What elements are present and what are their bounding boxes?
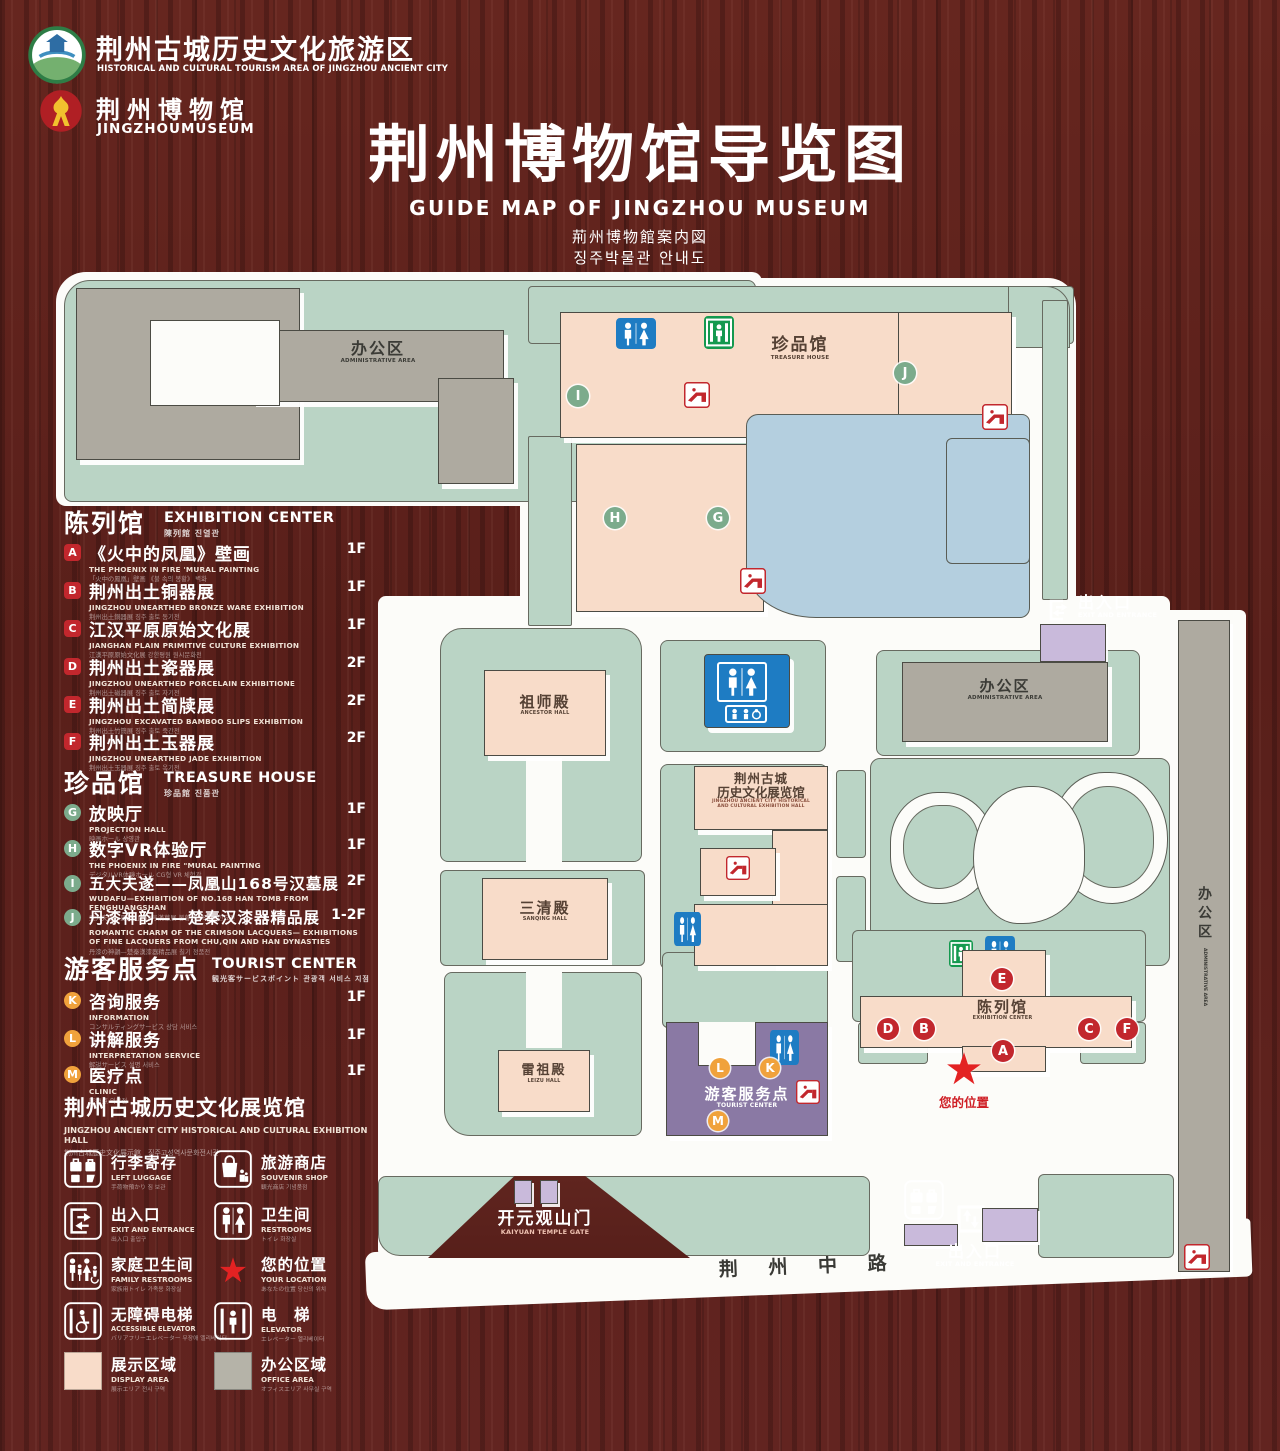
badge-B: B: [64, 582, 81, 599]
floor-tag: 1F: [347, 837, 366, 853]
lawn-south-east: [1038, 1174, 1174, 1258]
office-building-right: [902, 662, 1108, 742]
tourism-area-logo: [28, 26, 86, 84]
restroom-icon: [717, 662, 767, 702]
map-marker-H: H: [604, 507, 626, 529]
escalator-icon: [740, 568, 766, 594]
exit-top-label: 出入口 EXIT AND ENTRANCE: [1078, 594, 1178, 619]
your-location-star: ★: [936, 1048, 992, 1092]
section-title-sub: 陳列館 진열관: [164, 528, 334, 539]
legend-section-exhibition: 陈列馆 EXHIBITION CENTER 陳列館 진열관: [64, 504, 374, 540]
treasure-house-south-wing: [576, 444, 764, 612]
legend-section-tourist: 游客服务点 TOURIST CENTER 観光客サービスポイント 관광객 서비스…: [64, 950, 374, 986]
floor-tag: 1F: [347, 541, 366, 557]
escalator-icon: [796, 1080, 820, 1104]
map-marker-J: J: [894, 362, 916, 384]
escalator-icon: [684, 382, 710, 408]
office-top-label: 办公区 ADMINISTRATIVE AREA: [252, 340, 504, 364]
gate-post-right: [540, 1180, 558, 1204]
gate-post-left: [514, 1180, 532, 1204]
legend-symbol-souvenir: 旅游商店SOUVENIR SHOP観光商店 기념품점: [214, 1150, 362, 1191]
page-title-jp: 荊州博物館案内図: [290, 226, 990, 247]
legend-symbol-display-area: 展示区域DISPLAY AREA展示エリア 전시 구역: [64, 1352, 212, 1393]
family-restrooms-icon: [64, 1252, 102, 1290]
floor-tag: 1F: [347, 617, 366, 633]
restroom-pavilion: [704, 654, 790, 728]
section-title-en: EXHIBITION CENTER: [164, 510, 334, 526]
badge-F: F: [64, 733, 81, 750]
map-marker-F: F: [1116, 1018, 1138, 1040]
lawn-sliver-1: [836, 770, 866, 858]
badge-M: M: [64, 1066, 81, 1083]
office-area-swatch: [214, 1352, 252, 1390]
guide-map-poster: 荆州古城历史文化旅游区 HISTORICAL AND CULTURAL TOUR…: [0, 0, 1280, 1451]
legend-symbol-your-location: ★ 您的位置YOUR LOCATIONあなたの位置 당신의 위치: [214, 1252, 362, 1293]
exit-entrance-icon: [1048, 598, 1072, 622]
badge-J: J: [64, 909, 81, 926]
legend-item-K: K咨询服务1F INFORMATION コンサルティングサービス 상담 서비스: [64, 988, 366, 1031]
map-marker-A: A: [992, 1040, 1014, 1062]
map-marker-E: E: [991, 968, 1013, 990]
exhibition-center-label: 陈列馆 EXHIBITION CENTER: [935, 999, 1070, 1021]
exit-entrance-icon: [64, 1202, 102, 1240]
badge-L: L: [64, 1030, 81, 1047]
museum-name-en: JINGZHOUMUSEUM: [97, 121, 255, 137]
museum-name: 荆州博物馆: [96, 90, 251, 125]
left-luggage-icon: [904, 1180, 944, 1220]
elevator-icon: [214, 1302, 252, 1340]
map-marker-I: I: [567, 385, 589, 407]
page-title-en: GUIDE MAP OF JINGZHOU MUSEUM: [290, 196, 990, 220]
escalator-icon: [1184, 1244, 1210, 1270]
legend-item-D: D荆州出土瓷器展2F JINGZHOU UNEARTHED PORCELAIN …: [64, 654, 366, 697]
escalator-icon: [982, 404, 1008, 430]
exhibition-hall-label: 荆州古城 历史文化展览馆 JINGZHOU ANCIENT CITY HISTO…: [694, 772, 828, 810]
legend-hall-banner: 荆州古城历史文化展览馆 JINGZHOU ANCIENT CITY HISTOR…: [64, 1092, 394, 1158]
path-sanqing: [526, 968, 562, 1048]
tourist-center-notch: [698, 1022, 756, 1066]
section-title-en: TREASURE HOUSE: [164, 770, 317, 786]
badge-K: K: [64, 992, 81, 1009]
left-luggage-icon: [64, 1150, 102, 1188]
museum-logo: [38, 88, 84, 134]
page-title: 荆州博物馆导览图: [290, 104, 990, 194]
section-title-sub: 珍品館 진품관: [164, 788, 317, 799]
office-building-nw-3: [438, 378, 514, 484]
path-ancestor: [526, 758, 562, 862]
badge-G: G: [64, 804, 81, 821]
escalator-icon: [726, 856, 750, 880]
restroom-icon: [674, 912, 701, 946]
sanqing-hall-label: 三清殿 SANQING HALL: [482, 900, 608, 922]
garden-pond: [973, 786, 1085, 924]
badge-A: A: [64, 544, 81, 561]
section-title-sub: 観光客サービスポイント 관광객 서비스 지점: [212, 974, 370, 984]
badge-I: I: [64, 875, 81, 892]
floor-tag: 1F: [347, 1063, 366, 1079]
ancestor-hall-label: 祖师殿 ANCESTOR HALL: [484, 694, 606, 716]
legend-item-J: J丹漆神韵——楚秦汉漆器精品展1-2F ROMANTIC CHARM OF TH…: [64, 906, 366, 956]
legend-section-treasure: 珍品馆 TREASURE HOUSE 珍品館 진품관: [64, 764, 374, 800]
legend-symbol-exit: 出入口EXIT AND ENTRANCE出入口 출입구: [64, 1202, 212, 1243]
legend-symbol-office-area: 办公区域OFFICE AREAオフィスエリア 사무실 구역: [214, 1352, 362, 1393]
display-area-swatch: [64, 1352, 102, 1390]
office-right-label: 办公区 ADMINISTRATIVE AREA: [902, 678, 1108, 701]
restroom-icon: [616, 318, 656, 349]
entrance-gate-bottom-right: [982, 1208, 1038, 1242]
floor-tag: 1F: [347, 801, 366, 817]
souvenir-shop-icon: [214, 1150, 252, 1188]
floor-tag: 2F: [347, 730, 366, 746]
accessible-restroom-icon: [725, 705, 767, 723]
floor-tag: 2F: [347, 655, 366, 671]
legend-item-C: C江汉平原原始文化展1F JIANGHAN PLAIN PRIMITIVE CU…: [64, 616, 366, 659]
floor-tag: 1F: [347, 989, 366, 1005]
lawn-treasure-west: [528, 436, 572, 626]
exhibition-hall-south: [694, 904, 828, 966]
entrance-gate-top: [1040, 624, 1106, 662]
legend-symbol-accessible-elevator: 无障碍电梯ACCESSIBLE ELEVATORバリアフリーエレベーター 무장애…: [64, 1302, 212, 1342]
floor-tag: 1-2F: [331, 907, 366, 923]
elevator-icon: [704, 316, 734, 349]
tourism-area-name-en: HISTORICAL AND CULTURAL TOURISM AREA OF …: [97, 63, 448, 73]
office-strip-label: 办公区 ADMINISTRATIVE AREA: [1194, 886, 1214, 1006]
legend-symbol-family-restrooms: 家庭卫生间FAMILY RESTROOMS家族用トイレ 가족용 화장실: [64, 1252, 212, 1293]
map-marker-L: L: [710, 1058, 730, 1078]
legend-symbol-elevator: 电 梯ELEVATORエレベーター 엘리베이터: [214, 1302, 362, 1343]
restrooms-icon: [214, 1202, 252, 1240]
map-marker-C: C: [1078, 1018, 1100, 1040]
badge-D: D: [64, 658, 81, 675]
lawn-treasure-east: [1042, 300, 1068, 600]
legend-symbol-left-luggage: 行李寄存LEFT LUGGAGE手荷物預かり 짐 보관: [64, 1150, 212, 1191]
badge-H: H: [64, 840, 81, 857]
badge-E: E: [64, 696, 81, 713]
office-strip-building: 办公区 ADMINISTRATIVE AREA: [1178, 620, 1230, 1272]
floor-tag: 2F: [347, 693, 366, 709]
map-marker-B: B: [913, 1018, 935, 1040]
leizu-hall-label: 雷祖殿 LEIZU HALL: [498, 1064, 590, 1084]
map-marker-D: D: [877, 1018, 899, 1040]
tourism-area-name: 荆州古城历史文化旅游区: [96, 28, 415, 67]
section-title-en: TOURIST CENTER: [212, 956, 357, 972]
your-location-star: ★: [214, 1252, 252, 1290]
accessible-elevator-icon: [64, 1302, 102, 1340]
lake-east: [946, 438, 1030, 564]
legend-item-A: A《火中的凤凰》壁画1F THE PHOENIX IN FIRE 'MURAL …: [64, 540, 366, 583]
legend-item-B: B荆州出土铜器展1F JINGZHOU UNEARTHED BRONZE WAR…: [64, 578, 366, 621]
map-marker-K: K: [760, 1058, 780, 1078]
floor-tag: 2F: [347, 873, 366, 889]
your-location-label: 您的位置: [924, 1092, 1004, 1111]
page-title-kr: 징주박물관 안내도: [290, 247, 990, 268]
exit-bottom-label: 出入口 EXIT AND ENTRANCE: [920, 1243, 1030, 1268]
map-marker-M: M: [708, 1111, 728, 1131]
floor-tag: 1F: [347, 579, 366, 595]
legend-symbol-restrooms: 卫生间RESTROOMSトイレ 화장실: [214, 1202, 362, 1243]
badge-C: C: [64, 620, 81, 637]
map-marker-G: G: [707, 507, 729, 529]
gate-label: 开元观山门 KAIYUAN TEMPLE GATE: [455, 1210, 635, 1236]
floor-tag: 1F: [347, 1027, 366, 1043]
